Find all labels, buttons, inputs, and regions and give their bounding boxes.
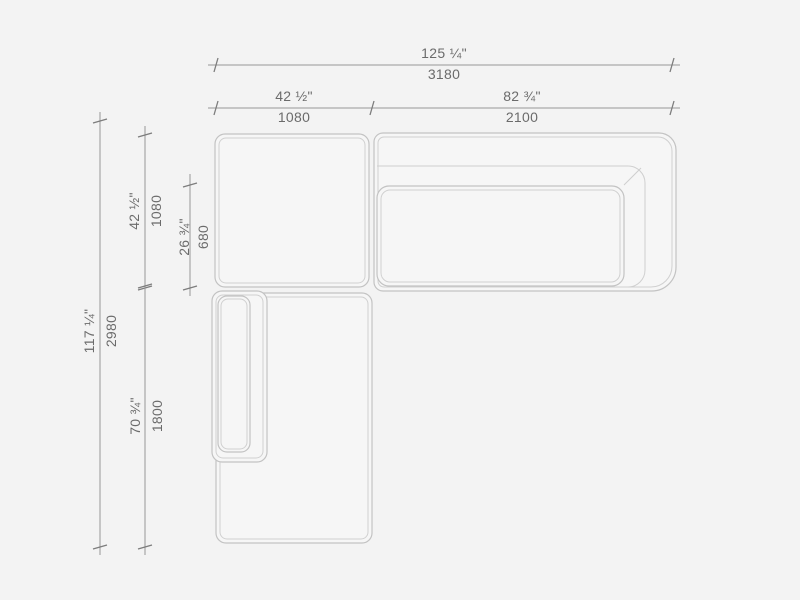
left-backrest-module <box>212 291 267 462</box>
right-sofa-module <box>374 133 676 291</box>
sofa-dimension-drawing: 125 ¼" 3180 42 ½" 1080 82 ¾" 2100 117 ¼"… <box>0 0 800 600</box>
label-lower-height-inches: 70 ¾" <box>128 397 142 435</box>
label-upper-height-mm: 1080 <box>149 195 163 227</box>
label-top-left-width-mm: 1080 <box>278 110 310 124</box>
drawing-canvas <box>0 0 800 600</box>
label-overall-height-inches: 117 ¼" <box>82 309 96 354</box>
label-overall-width-inches: 125 ¼" <box>421 46 467 60</box>
label-overall-height-mm: 2980 <box>104 315 118 347</box>
right-sofa-seat-cushion <box>377 186 624 286</box>
ottoman-module <box>215 134 369 287</box>
label-lower-height-mm: 1800 <box>150 400 164 432</box>
label-overall-width-mm: 3180 <box>428 67 460 81</box>
label-top-left-width-inches: 42 ½" <box>275 89 313 103</box>
label-upper-height-inches: 42 ½" <box>127 192 141 230</box>
sofa-plan <box>212 133 676 543</box>
label-seat-depth-inches: 26 ¾" <box>177 218 191 256</box>
label-top-right-width-inches: 82 ¾" <box>503 89 541 103</box>
left-backrest-cushion <box>218 296 250 452</box>
label-seat-depth-mm: 680 <box>196 225 210 249</box>
label-top-right-width-mm: 2100 <box>506 110 538 124</box>
